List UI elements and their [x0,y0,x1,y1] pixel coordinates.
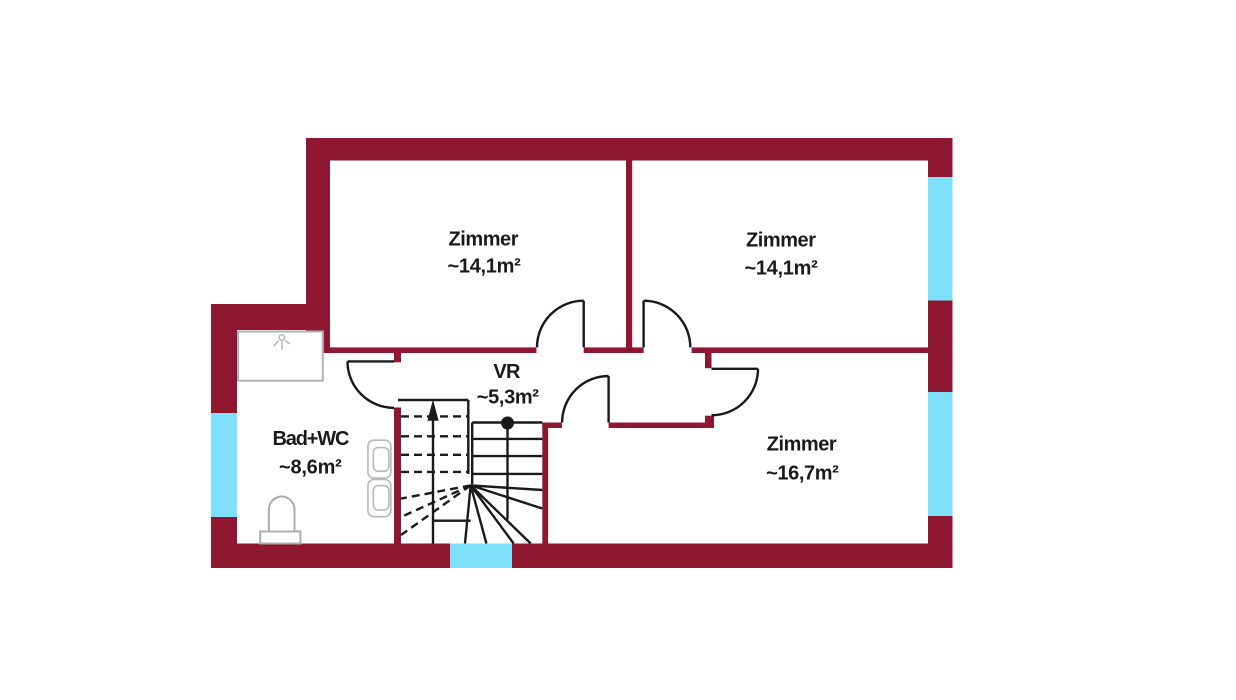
svg-text:~14,1m²: ~14,1m² [744,258,818,280]
svg-text:Zimmer: Zimmer [746,230,816,252]
svg-text:~14,1m²: ~14,1m² [447,256,521,278]
svg-text:~16,7m²: ~16,7m² [766,462,839,484]
svg-text:~8,6m²: ~8,6m² [279,456,342,478]
svg-text:VR: VR [493,361,521,383]
svg-text:Zimmer: Zimmer [767,433,837,455]
svg-text:Zimmer: Zimmer [449,229,519,251]
svg-text:Bad+WC: Bad+WC [273,428,349,450]
svg-text:~5,3m²: ~5,3m² [477,387,540,409]
